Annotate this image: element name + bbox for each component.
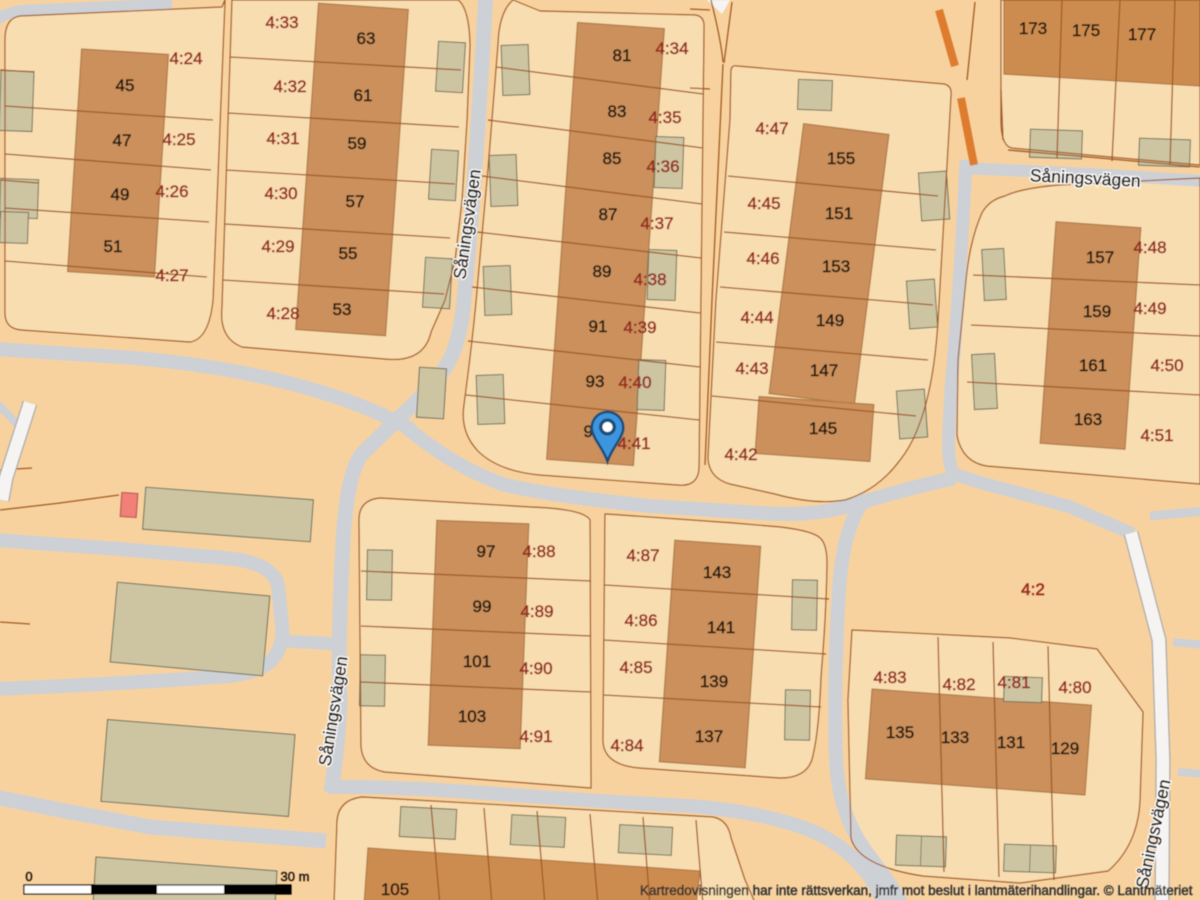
svg-text:175: 175 [1072, 21, 1100, 40]
svg-text:137: 137 [695, 727, 723, 746]
svg-text:4:83: 4:83 [873, 668, 906, 687]
svg-text:129: 129 [1051, 739, 1079, 758]
svg-text:173: 173 [1019, 19, 1047, 38]
svg-text:87: 87 [599, 205, 618, 224]
svg-text:4:37: 4:37 [640, 214, 673, 233]
svg-text:4:25: 4:25 [162, 130, 195, 149]
svg-text:4:42: 4:42 [724, 445, 757, 464]
svg-text:81: 81 [613, 46, 632, 65]
svg-text:83: 83 [608, 102, 627, 121]
svg-text:4:30: 4:30 [264, 184, 297, 203]
svg-text:4:24: 4:24 [169, 49, 202, 68]
svg-text:4:35: 4:35 [648, 108, 681, 127]
svg-text:85: 85 [603, 149, 622, 168]
svg-text:59: 59 [348, 134, 367, 153]
svg-text:4:36: 4:36 [646, 157, 679, 176]
svg-text:4:26: 4:26 [155, 182, 188, 201]
svg-text:177: 177 [1128, 25, 1156, 44]
svg-text:4:44: 4:44 [740, 308, 773, 327]
svg-text:4:89: 4:89 [520, 602, 553, 621]
svg-text:155: 155 [827, 149, 855, 168]
svg-text:89: 89 [593, 262, 612, 281]
svg-text:45: 45 [116, 76, 135, 95]
svg-text:4:38: 4:38 [633, 270, 666, 289]
svg-text:93: 93 [586, 372, 605, 391]
svg-text:4:81: 4:81 [997, 673, 1030, 692]
svg-text:4:82: 4:82 [942, 675, 975, 694]
svg-text:51: 51 [104, 237, 123, 256]
svg-text:4:87: 4:87 [626, 546, 659, 565]
svg-text:135: 135 [886, 723, 914, 742]
svg-text:57: 57 [346, 192, 365, 211]
svg-text:47: 47 [113, 131, 132, 150]
svg-text:4:48: 4:48 [1133, 238, 1166, 257]
svg-text:91: 91 [589, 317, 608, 336]
svg-text:4:84: 4:84 [610, 736, 643, 755]
svg-text:4:86: 4:86 [624, 611, 657, 630]
svg-text:4:32: 4:32 [273, 77, 306, 96]
svg-text:4:51: 4:51 [1140, 426, 1173, 445]
svg-text:4:49: 4:49 [1133, 299, 1166, 318]
svg-text:97: 97 [477, 542, 496, 561]
svg-text:105: 105 [381, 880, 409, 899]
svg-text:4:88: 4:88 [522, 542, 555, 561]
svg-text:61: 61 [354, 86, 373, 105]
svg-text:151: 151 [825, 204, 853, 223]
svg-text:53: 53 [333, 300, 352, 319]
svg-text:101: 101 [463, 652, 491, 671]
svg-text:141: 141 [707, 618, 735, 637]
svg-text:4:28: 4:28 [266, 304, 299, 323]
svg-text:161: 161 [1079, 356, 1107, 375]
svg-text:4:29: 4:29 [261, 237, 294, 256]
svg-text:4:40: 4:40 [618, 373, 651, 392]
svg-text:99: 99 [473, 597, 492, 616]
svg-text:103: 103 [458, 707, 486, 726]
svg-text:4:91: 4:91 [519, 727, 552, 746]
svg-text:4:43: 4:43 [735, 359, 768, 378]
svg-text:49: 49 [111, 185, 130, 204]
svg-text:Kartredovisningen har inte rät: Kartredovisningen har inte rättsverkan, … [640, 883, 1193, 898]
svg-text:4:2: 4:2 [1021, 580, 1045, 599]
svg-text:4:27: 4:27 [155, 266, 188, 285]
svg-text:4:46: 4:46 [746, 249, 779, 268]
svg-text:4:39: 4:39 [623, 318, 656, 337]
svg-text:4:80: 4:80 [1058, 678, 1091, 697]
svg-text:149: 149 [816, 311, 844, 330]
svg-text:157: 157 [1086, 248, 1114, 267]
svg-text:4:41: 4:41 [617, 434, 650, 453]
svg-text:133: 133 [941, 728, 969, 747]
svg-text:0: 0 [25, 869, 32, 884]
svg-text:4:47: 4:47 [755, 119, 788, 138]
svg-text:147: 147 [810, 361, 838, 380]
svg-text:143: 143 [703, 563, 731, 582]
svg-text:145: 145 [809, 419, 837, 438]
svg-text:4:33: 4:33 [265, 13, 298, 32]
svg-text:30 m: 30 m [281, 869, 310, 884]
svg-text:55: 55 [339, 244, 358, 263]
svg-text:159: 159 [1083, 302, 1111, 321]
svg-text:4:90: 4:90 [519, 659, 552, 678]
svg-text:4:34: 4:34 [655, 39, 688, 58]
svg-text:163: 163 [1074, 410, 1102, 429]
svg-text:131: 131 [997, 733, 1025, 752]
svg-text:4:85: 4:85 [619, 658, 652, 677]
svg-text:139: 139 [700, 672, 728, 691]
svg-text:4:31: 4:31 [266, 129, 299, 148]
svg-text:4:50: 4:50 [1150, 356, 1183, 375]
svg-text:153: 153 [822, 257, 850, 276]
svg-text:63: 63 [357, 29, 376, 48]
svg-text:4:45: 4:45 [747, 194, 780, 213]
